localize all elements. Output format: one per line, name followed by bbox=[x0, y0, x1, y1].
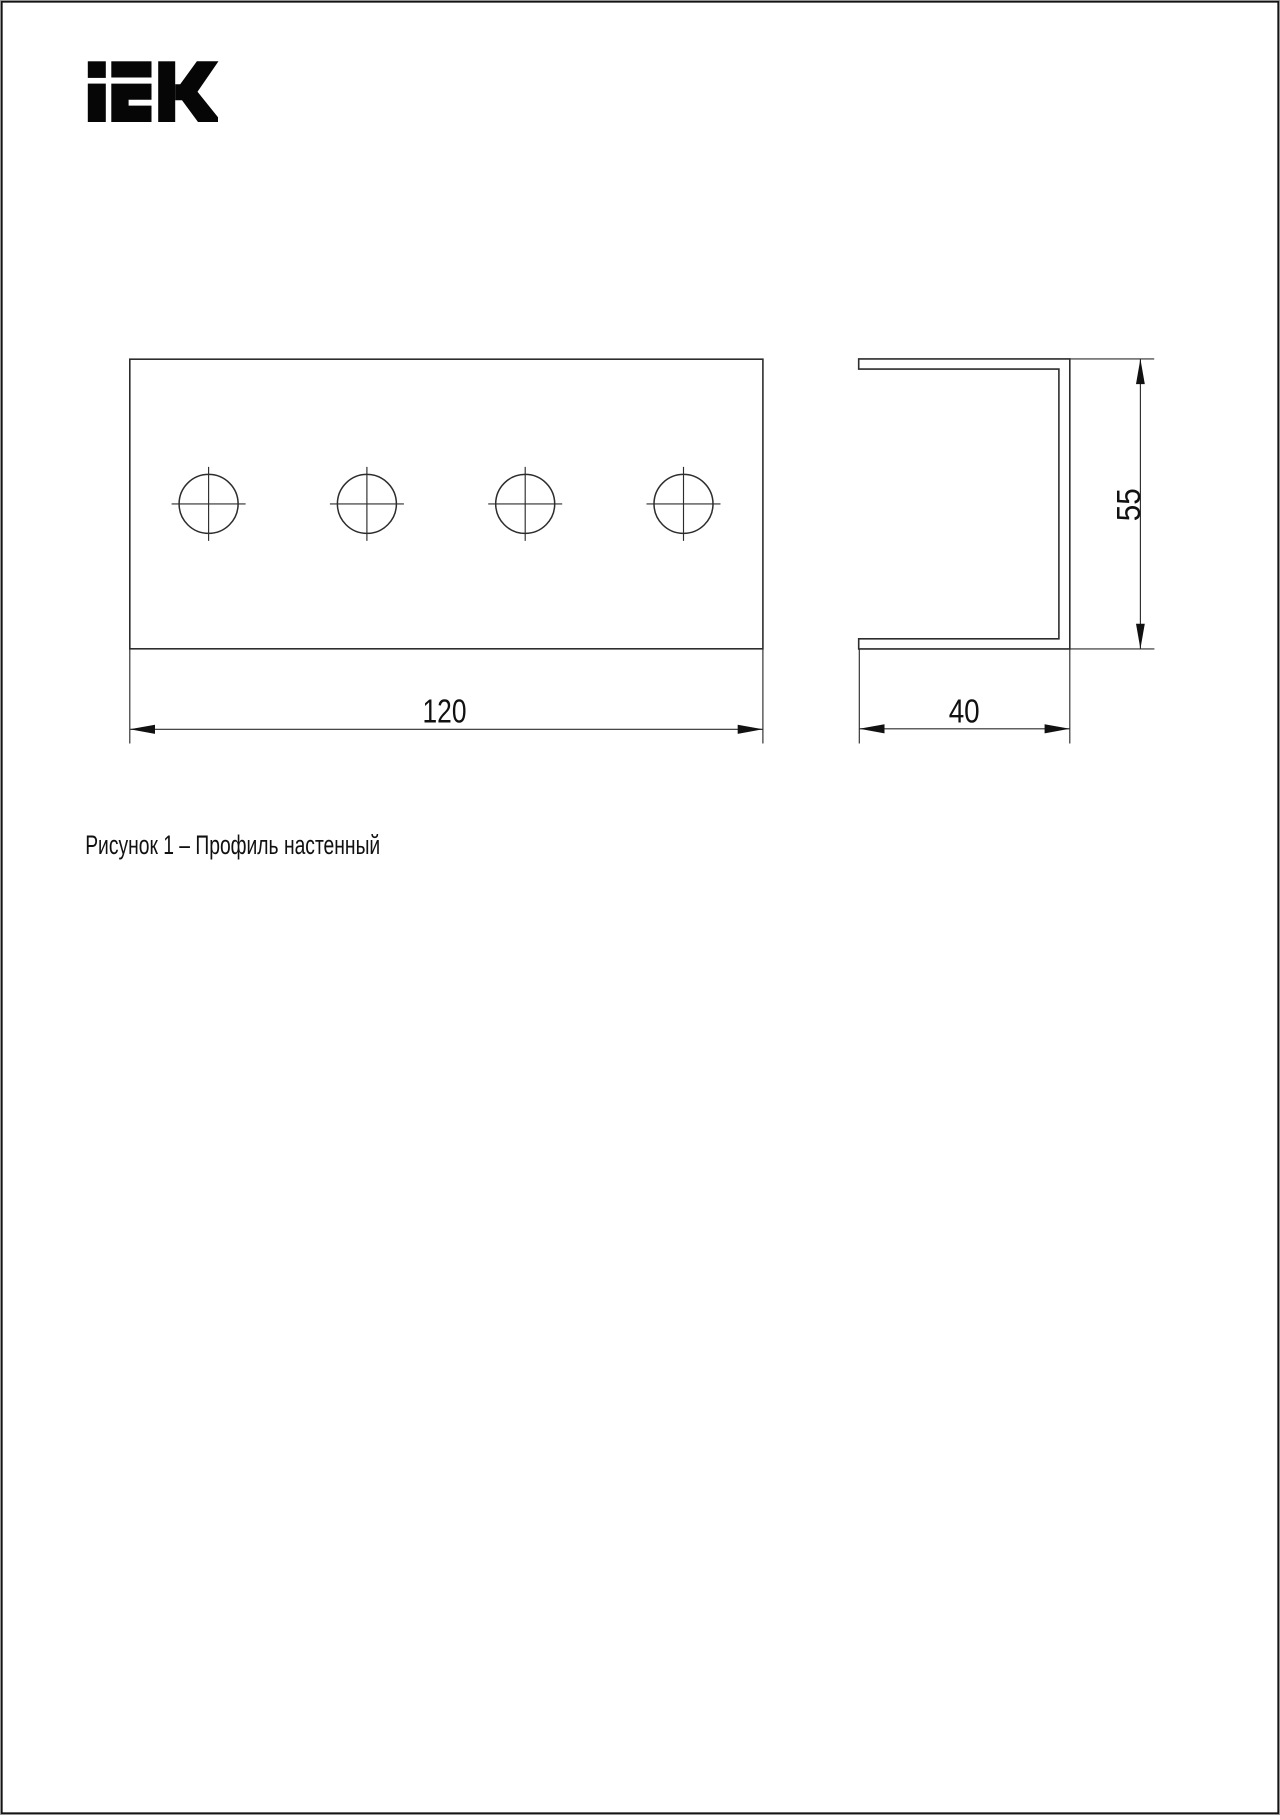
svg-text:120: 120 bbox=[423, 693, 467, 730]
svg-text:40: 40 bbox=[949, 692, 980, 729]
svg-text:Рисунок 1 – Профиль настенный: Рисунок 1 – Профиль настенный bbox=[85, 830, 380, 860]
svg-text:55: 55 bbox=[1110, 488, 1147, 521]
